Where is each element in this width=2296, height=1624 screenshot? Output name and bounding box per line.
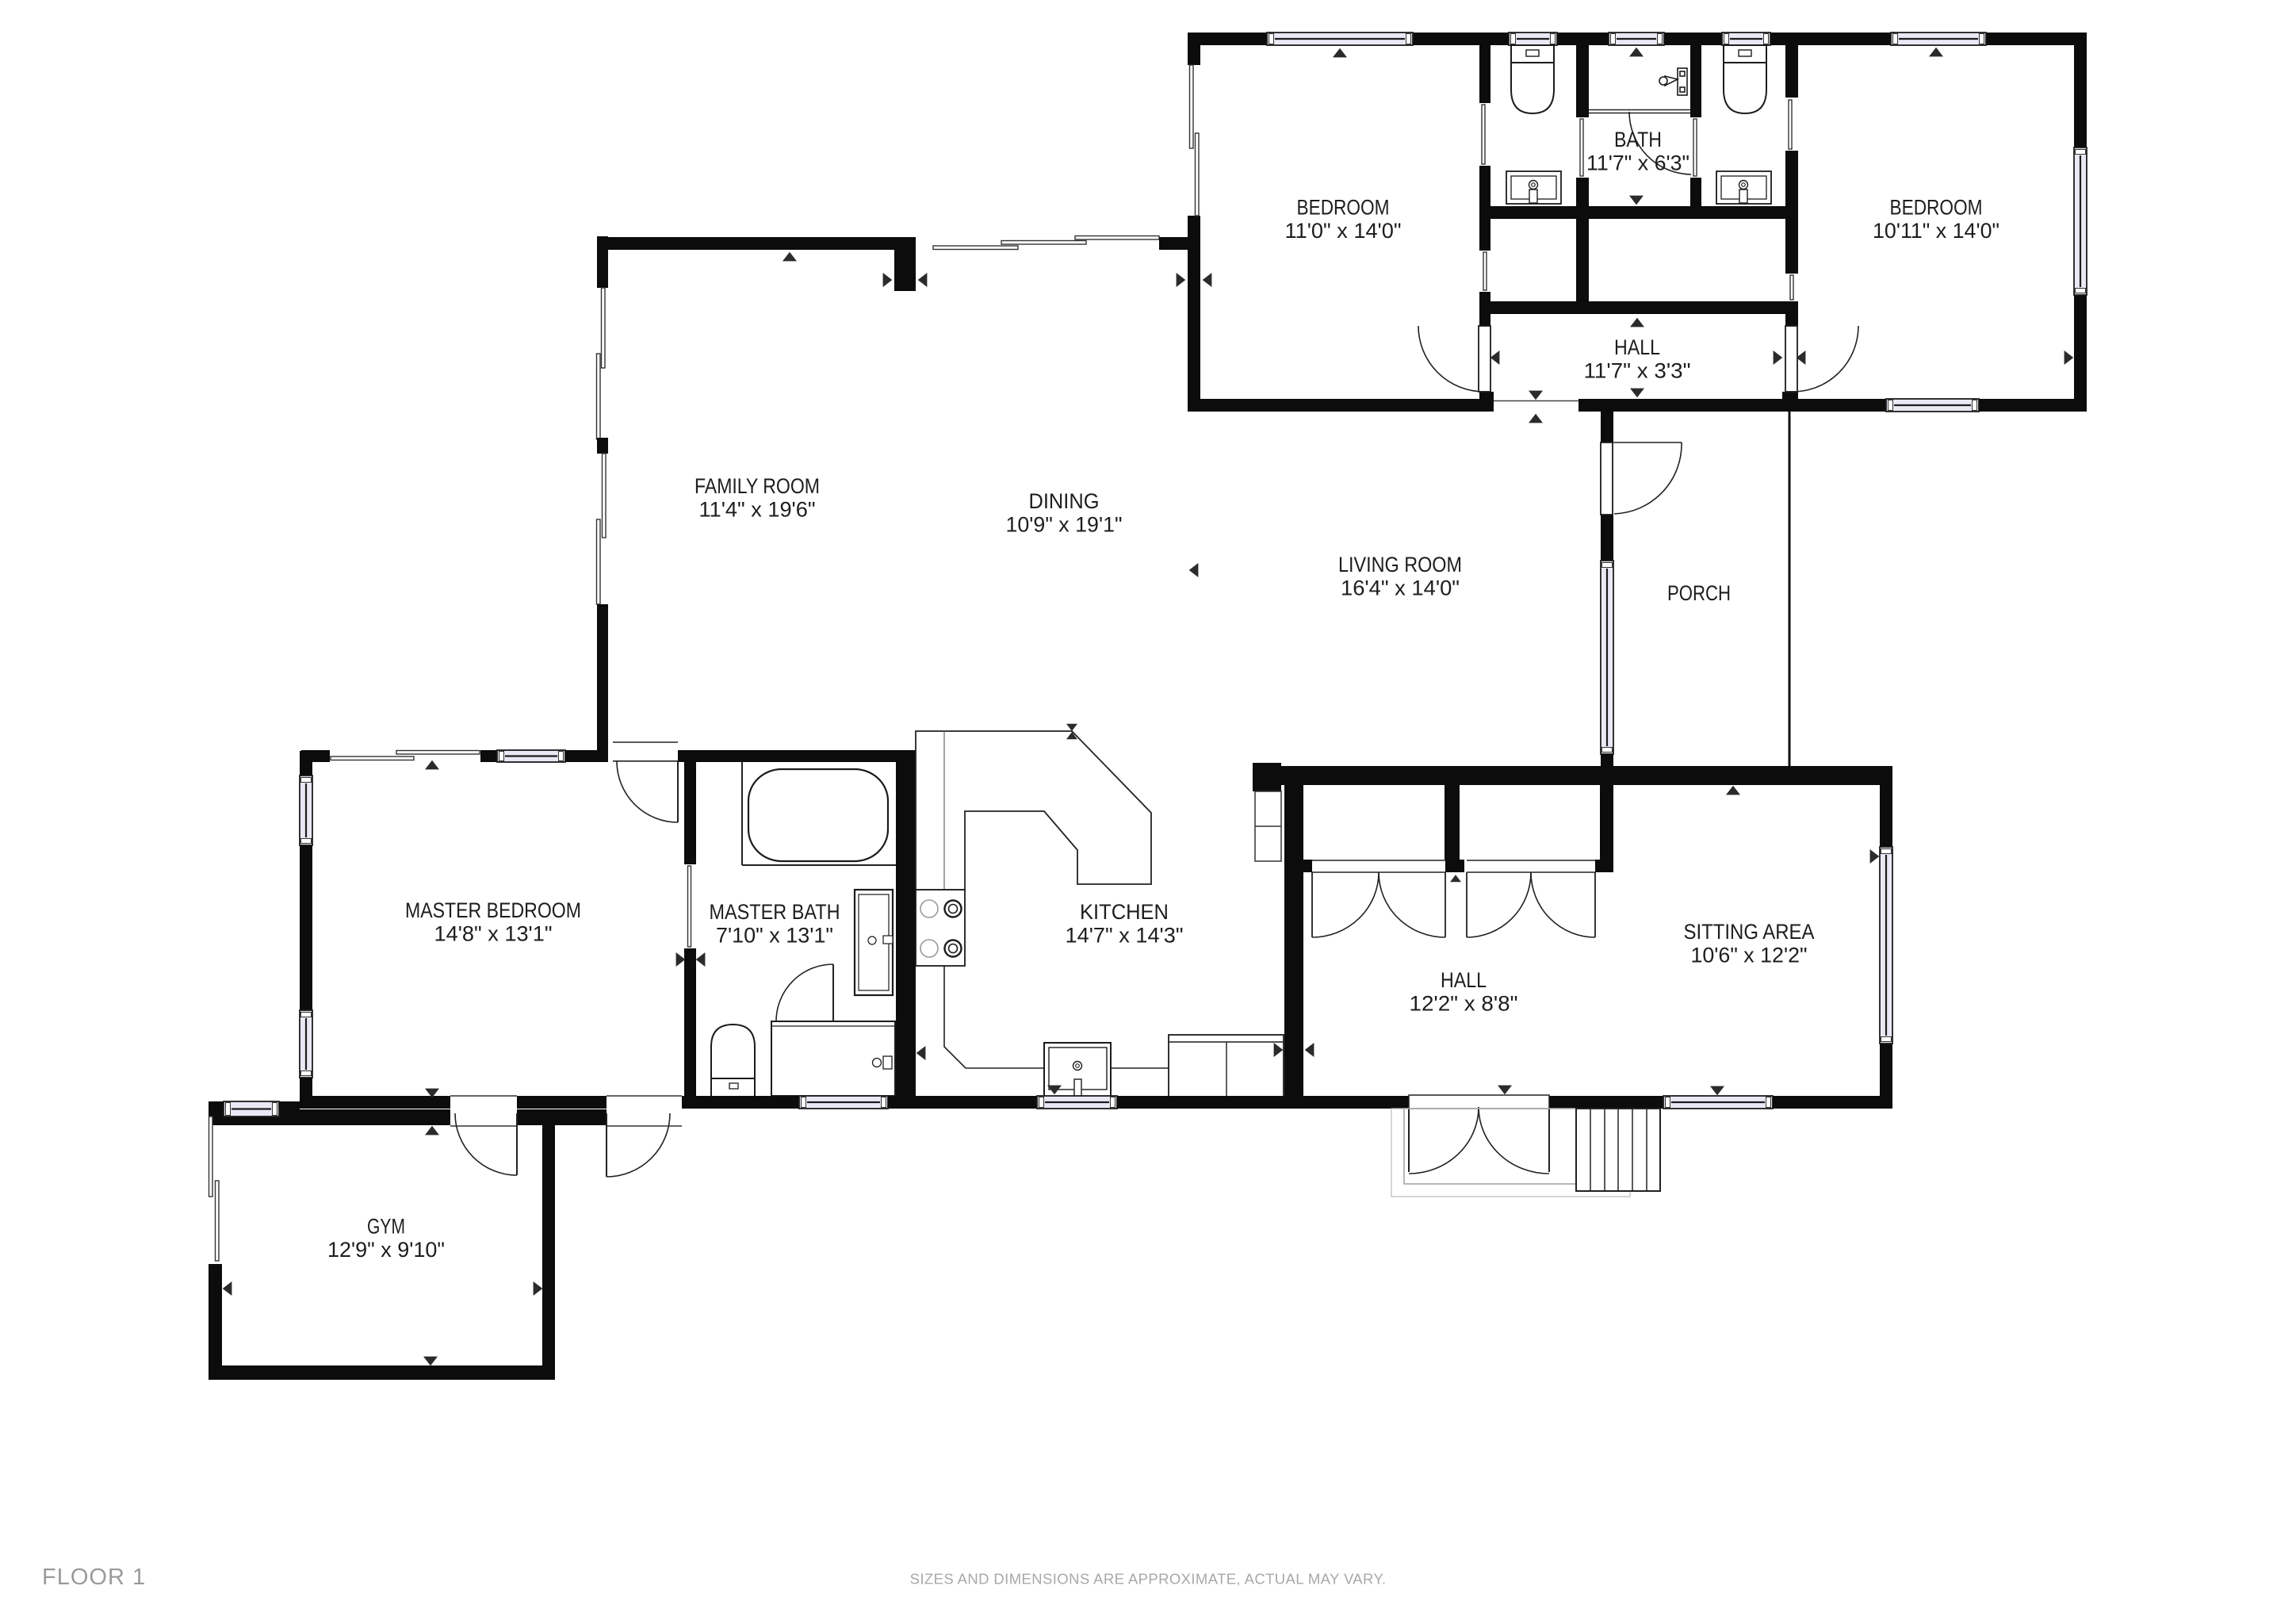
svg-text:PORCH: PORCH xyxy=(1667,581,1731,605)
svg-text:10'11" x 14'0": 10'11" x 14'0" xyxy=(1873,219,1999,243)
svg-text:16'4" x 14'0": 16'4" x 14'0" xyxy=(1341,576,1460,600)
svg-text:FAMILY ROOM: FAMILY ROOM xyxy=(695,474,820,498)
svg-text:HALL: HALL xyxy=(1614,335,1660,359)
svg-text:BATH: BATH xyxy=(1614,128,1662,151)
svg-text:11'4" x 19'6": 11'4" x 19'6" xyxy=(699,498,816,522)
svg-text:KITCHEN: KITCHEN xyxy=(1080,900,1169,924)
svg-text:LIVING ROOM: LIVING ROOM xyxy=(1338,553,1462,576)
svg-text:7'10" x 13'1": 7'10" x 13'1" xyxy=(716,924,833,948)
svg-text:MASTER BEDROOM: MASTER BEDROOM xyxy=(405,898,581,922)
svg-text:BEDROOM: BEDROOM xyxy=(1297,196,1390,220)
svg-text:14'7" x 14'3": 14'7" x 14'3" xyxy=(1066,924,1184,948)
svg-text:10'9" x 19'1": 10'9" x 19'1" xyxy=(1006,513,1123,537)
svg-text:12'9" x 9'10": 12'9" x 9'10" xyxy=(327,1238,445,1262)
svg-text:12'2" x 8'8": 12'2" x 8'8" xyxy=(1410,992,1518,1016)
svg-text:DINING: DINING xyxy=(1029,489,1100,513)
svg-text:GYM: GYM xyxy=(367,1215,405,1239)
svg-text:11'7" x 6'3": 11'7" x 6'3" xyxy=(1586,151,1689,175)
svg-text:10'6" x 12'2": 10'6" x 12'2" xyxy=(1691,944,1808,967)
svg-text:FLOOR 1: FLOOR 1 xyxy=(42,1565,146,1590)
svg-text:MASTER BATH: MASTER BATH xyxy=(710,900,840,924)
svg-text:11'7" x 3'3": 11'7" x 3'3" xyxy=(1584,358,1691,382)
svg-text:14'8" x 13'1": 14'8" x 13'1" xyxy=(434,922,553,946)
svg-text:BEDROOM: BEDROOM xyxy=(1890,196,1983,220)
svg-text:SIZES AND DIMENSIONS ARE APPRO: SIZES AND DIMENSIONS ARE APPROXIMATE, AC… xyxy=(910,1571,1387,1588)
svg-text:SITTING AREA: SITTING AREA xyxy=(1684,920,1815,944)
svg-text:11'0" x 14'0": 11'0" x 14'0" xyxy=(1285,219,1402,243)
svg-text:HALL: HALL xyxy=(1441,968,1487,992)
